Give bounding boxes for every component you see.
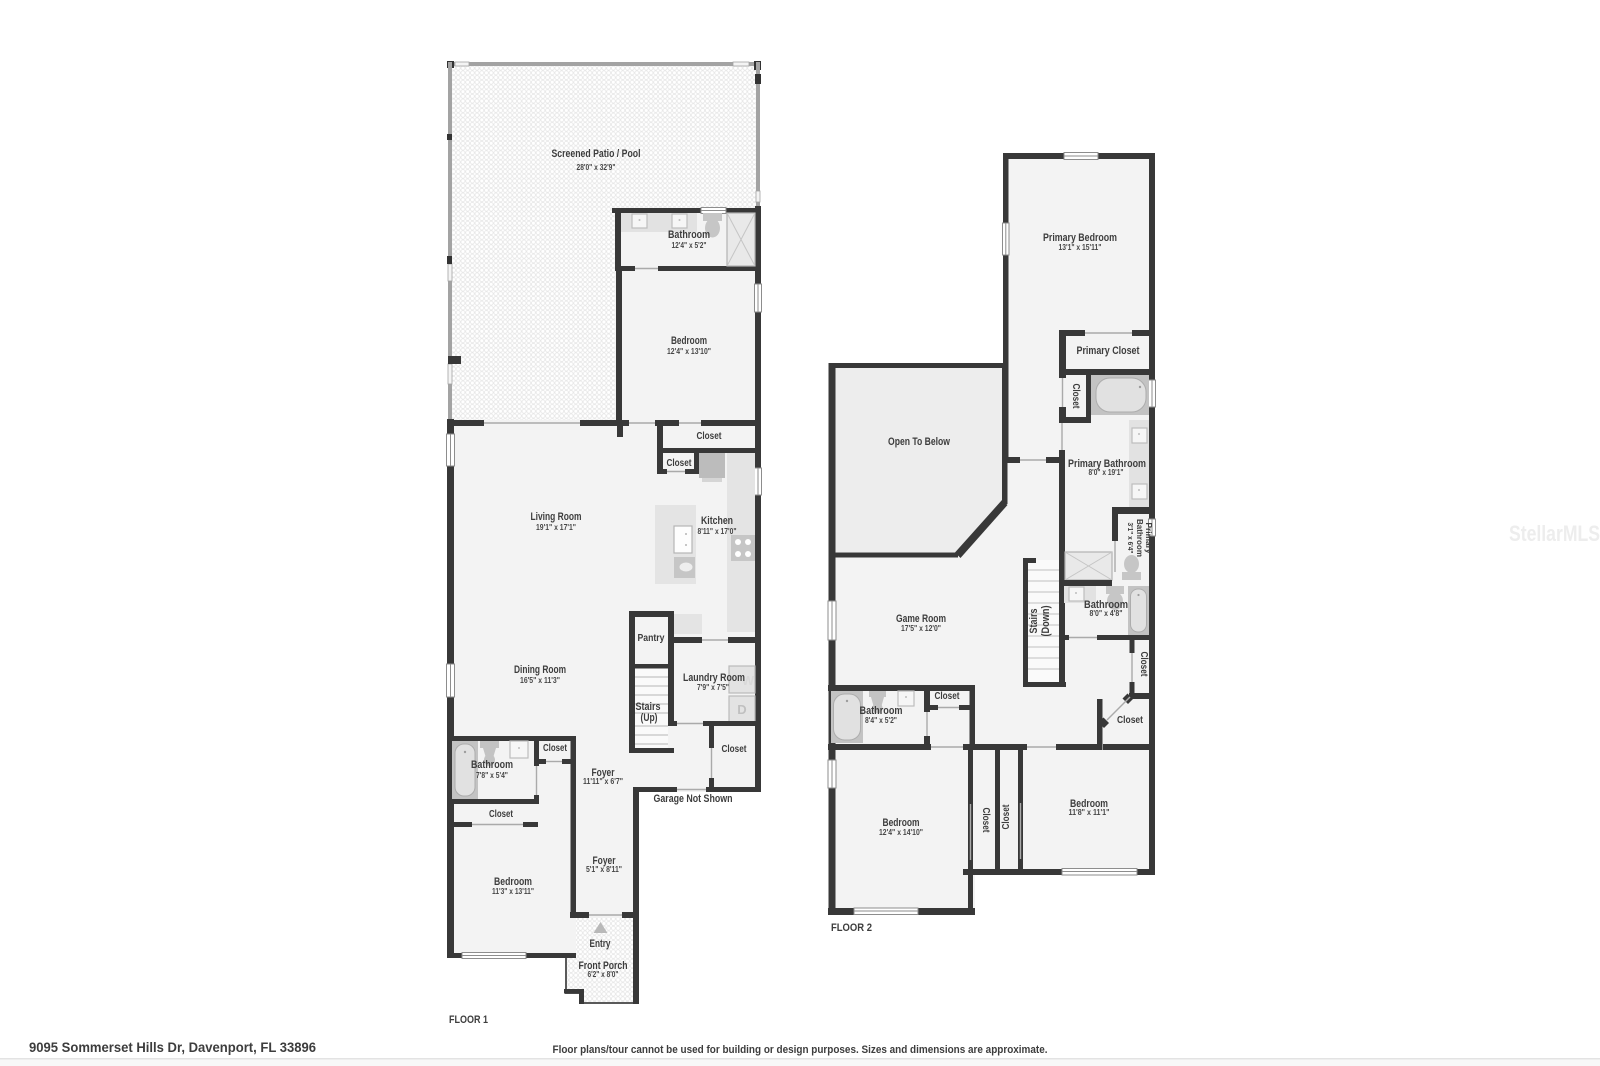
svg-text:11'11" x 6'7": 11'11" x 6'7": [583, 776, 623, 786]
svg-text:StellarMLS: StellarMLS: [1509, 521, 1600, 546]
svg-text:Closet: Closet: [1070, 384, 1081, 410]
svg-text:Entry: Entry: [590, 938, 612, 950]
svg-text:Bathroom: Bathroom: [1135, 519, 1145, 557]
svg-text:12'4" x 13'10": 12'4" x 13'10": [667, 346, 711, 356]
svg-text:8'0" x 4'8": 8'0" x 4'8": [1090, 608, 1123, 618]
svg-text:(Up): (Up): [641, 712, 658, 724]
svg-text:16'5" x 11'3": 16'5" x 11'3": [520, 675, 560, 685]
svg-text:Primary Closet: Primary Closet: [1077, 345, 1140, 357]
svg-text:FLOOR 1: FLOOR 1: [449, 1014, 488, 1026]
svg-text:Closet: Closet: [1117, 715, 1144, 726]
svg-text:Stairs: Stairs: [1028, 609, 1040, 634]
svg-text:8'0" x 19'1": 8'0" x 19'1": [1089, 467, 1124, 477]
svg-text:Floor plans/tour cannot be use: Floor plans/tour cannot be used for buil…: [553, 1044, 1048, 1056]
svg-text:Closet: Closet: [1138, 652, 1149, 678]
svg-text:3'1" x 6'4": 3'1" x 6'4": [1126, 523, 1133, 554]
svg-text:Open To Below: Open To Below: [888, 436, 950, 448]
svg-text:Closet: Closet: [722, 744, 748, 755]
svg-text:11'8" x 11'1": 11'8" x 11'1": [1069, 807, 1110, 817]
svg-text:Pantry: Pantry: [638, 633, 665, 644]
svg-text:7'8" x 5'4": 7'8" x 5'4": [476, 770, 508, 780]
svg-text:(Down): (Down): [1040, 605, 1052, 636]
svg-text:11'3" x 13'11": 11'3" x 13'11": [492, 886, 534, 896]
svg-text:Closet: Closet: [980, 808, 991, 834]
svg-text:Closet: Closet: [543, 743, 568, 754]
svg-text:13'1" x 15'11": 13'1" x 15'11": [1059, 242, 1102, 252]
svg-text:Closet: Closet: [489, 809, 514, 820]
svg-text:12'4" x 5'2": 12'4" x 5'2": [672, 240, 707, 250]
svg-text:19'1" x 17'1": 19'1" x 17'1": [536, 522, 576, 532]
svg-text:8'11" x 17'0": 8'11" x 17'0": [698, 526, 737, 536]
svg-text:9095 Sommerset Hills Dr, Daven: 9095 Sommerset Hills Dr, Davenport, FL 3…: [29, 1039, 316, 1055]
svg-text:28'0" x 32'9": 28'0" x 32'9": [577, 162, 616, 172]
svg-text:17'5" x 12'0": 17'5" x 12'0": [901, 623, 941, 633]
svg-text:6'2" x 8'0": 6'2" x 8'0": [588, 969, 619, 979]
svg-text:7'9" x 7'5": 7'9" x 7'5": [697, 682, 729, 692]
svg-text:5'1" x 8'11": 5'1" x 8'11": [586, 864, 622, 874]
svg-text:Closet: Closet: [935, 691, 961, 702]
svg-text:Closet: Closet: [697, 431, 723, 442]
svg-text:FLOOR 2: FLOOR 2: [831, 922, 872, 934]
svg-text:8'4" x 5'2": 8'4" x 5'2": [865, 715, 897, 725]
svg-text:Garage Not Shown: Garage Not Shown: [654, 793, 733, 805]
svg-text:Closet: Closet: [667, 458, 693, 469]
svg-text:Screened Patio / Pool: Screened Patio / Pool: [552, 148, 641, 160]
svg-text:D: D: [737, 702, 746, 717]
svg-text:12'4" x 14'10": 12'4" x 14'10": [879, 827, 923, 837]
svg-text:Closet: Closet: [1001, 804, 1012, 830]
